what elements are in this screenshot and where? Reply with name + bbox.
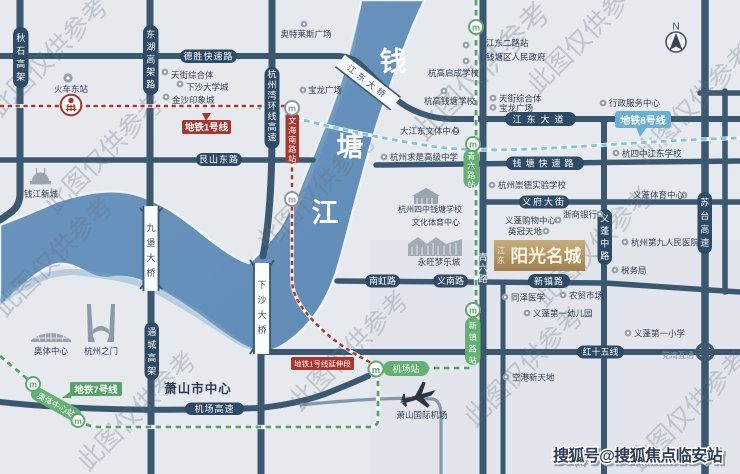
svg-text:青: 青 bbox=[467, 151, 475, 161]
svg-text:站: 站 bbox=[288, 154, 296, 164]
svg-text:下: 下 bbox=[257, 280, 266, 290]
svg-text:秋: 秋 bbox=[16, 32, 25, 43]
svg-text:桥: 桥 bbox=[257, 324, 266, 335]
svg-text:架: 架 bbox=[146, 67, 155, 77]
svg-text:高: 高 bbox=[700, 224, 709, 235]
svg-text:义南路: 义南路 bbox=[437, 275, 464, 286]
svg-text:杭: 杭 bbox=[267, 69, 276, 80]
svg-text:南虹路: 南虹路 bbox=[369, 275, 396, 286]
svg-text:大: 大 bbox=[257, 309, 266, 320]
svg-text:江: 江 bbox=[312, 198, 339, 228]
svg-text:南: 南 bbox=[288, 135, 296, 145]
svg-text:钱塘快速路: 钱塘快速路 bbox=[512, 158, 577, 169]
svg-text:高: 高 bbox=[147, 352, 156, 363]
svg-text:m: m bbox=[288, 195, 296, 205]
svg-text:架: 架 bbox=[147, 366, 156, 376]
svg-text:镇: 镇 bbox=[469, 332, 477, 342]
svg-text:东: 东 bbox=[497, 255, 505, 265]
svg-text:义蓬第一小学: 义蓬第一小学 bbox=[634, 329, 686, 339]
svg-text:六: 六 bbox=[478, 262, 487, 273]
svg-text:税务局: 税务局 bbox=[621, 266, 647, 276]
svg-text:高: 高 bbox=[146, 54, 155, 65]
svg-text:江东大道: 江东大道 bbox=[512, 113, 568, 124]
svg-text:艮山东路: 艮山东路 bbox=[199, 154, 239, 165]
svg-text:环: 环 bbox=[267, 101, 276, 111]
svg-text:钱塘区人民政府: 钱塘区人民政府 bbox=[486, 52, 546, 62]
svg-text:浙商银行: 浙商银行 bbox=[563, 210, 598, 220]
svg-text:义府大街: 义府大街 bbox=[522, 196, 566, 207]
svg-text:杭州四中钱塘学校: 杭州四中钱塘学校 bbox=[398, 204, 462, 214]
svg-text:路: 路 bbox=[469, 344, 477, 354]
svg-text:通: 通 bbox=[147, 327, 156, 337]
svg-text:m: m bbox=[469, 140, 477, 150]
svg-text:奥特莱斯广场: 奥特莱斯广场 bbox=[280, 29, 331, 39]
svg-text:堡: 堡 bbox=[146, 237, 155, 248]
svg-text:永旺梦乐城: 永旺梦乐城 bbox=[418, 257, 461, 267]
svg-text:钱江新城: 钱江新城 bbox=[24, 189, 59, 199]
svg-text:海: 海 bbox=[288, 125, 296, 135]
svg-text:沙: 沙 bbox=[257, 295, 266, 305]
svg-text:台: 台 bbox=[700, 210, 709, 221]
svg-text:湖: 湖 bbox=[146, 42, 155, 52]
svg-text:m: m bbox=[372, 365, 380, 376]
svg-text:路: 路 bbox=[467, 170, 475, 180]
svg-text:高: 高 bbox=[16, 58, 25, 69]
svg-text:天街综合体: 天街综合体 bbox=[171, 70, 214, 80]
svg-text:州: 州 bbox=[267, 80, 276, 90]
svg-text:新镇路: 新镇路 bbox=[534, 275, 564, 286]
svg-text:杭高钱塘学校: 杭高钱塘学校 bbox=[424, 96, 476, 106]
svg-text:石: 石 bbox=[16, 46, 25, 56]
svg-text:架: 架 bbox=[16, 72, 25, 82]
svg-text:m: m bbox=[29, 380, 37, 390]
svg-text:搜狐号@搜狐焦点临安站: 搜狐号@搜狐焦点临安站 bbox=[553, 446, 723, 465]
svg-text:党湾互通: 党湾互通 bbox=[662, 350, 694, 360]
svg-text:义蓬购物中心: 义蓬购物中心 bbox=[505, 216, 557, 226]
svg-text:同泽医学: 同泽医学 bbox=[511, 293, 546, 303]
svg-text:杭高启成学校: 杭高启成学校 bbox=[428, 68, 480, 78]
svg-text:火车东站: 火车东站 bbox=[54, 84, 89, 94]
svg-text:农贸市场: 农贸市场 bbox=[569, 291, 603, 301]
svg-text:塘: 塘 bbox=[337, 131, 364, 162]
svg-text:江东二路站: 江东二路站 bbox=[486, 38, 529, 48]
svg-text:m: m bbox=[472, 23, 480, 33]
svg-text:桥: 桥 bbox=[146, 267, 155, 278]
svg-text:义蓬第一幼儿园: 义蓬第一幼儿园 bbox=[533, 309, 593, 319]
svg-text:德胜快速路: 德胜快速路 bbox=[183, 51, 233, 62]
svg-text:站: 站 bbox=[469, 355, 477, 365]
svg-text:速: 速 bbox=[700, 238, 709, 248]
svg-text:宝龙广场: 宝龙广场 bbox=[308, 85, 342, 95]
svg-text:奥体中心: 奥体中心 bbox=[34, 346, 69, 356]
svg-text:宝龙广场: 宝龙广场 bbox=[499, 103, 533, 113]
svg-text:城: 城 bbox=[147, 340, 156, 350]
svg-text:行政服务中心: 行政服务中心 bbox=[609, 98, 661, 108]
svg-text:N: N bbox=[672, 21, 680, 33]
svg-text:湾: 湾 bbox=[267, 90, 276, 101]
svg-text:六: 六 bbox=[467, 161, 475, 171]
svg-text:九: 九 bbox=[146, 223, 155, 233]
svg-text:站: 站 bbox=[467, 180, 475, 190]
svg-text:地铁7号线: 地铁7号线 bbox=[74, 384, 118, 396]
svg-text:大江东文体中心: 大江东文体中心 bbox=[400, 126, 460, 136]
svg-text:红十五线: 红十五线 bbox=[582, 346, 618, 357]
svg-text:英冠天地: 英冠天地 bbox=[508, 227, 543, 237]
svg-text:义蓬体育中心: 义蓬体育中心 bbox=[633, 190, 685, 200]
svg-text:钱: 钱 bbox=[380, 47, 407, 77]
svg-text:杭州第九人民医院: 杭州第九人民医院 bbox=[631, 238, 700, 248]
svg-text:青: 青 bbox=[478, 251, 487, 262]
svg-text:速: 速 bbox=[267, 133, 276, 143]
svg-text:路: 路 bbox=[600, 250, 609, 261]
svg-text:m: m bbox=[288, 104, 296, 114]
svg-text:阳光名城: 阳光名城 bbox=[510, 245, 581, 266]
svg-text:m: m bbox=[469, 306, 477, 316]
svg-text:下沙大学城: 下沙大学城 bbox=[186, 82, 229, 92]
svg-text:金沙印象城: 金沙印象城 bbox=[172, 95, 215, 105]
svg-text:新: 新 bbox=[469, 321, 477, 331]
svg-text:杭州求是高级中学: 杭州求是高级中学 bbox=[390, 152, 459, 162]
svg-text:天街综合体: 天街综合体 bbox=[499, 94, 542, 104]
svg-text:地铁1号线: 地铁1号线 bbox=[185, 122, 229, 134]
svg-text:地铁8号线: 地铁8号线 bbox=[620, 114, 666, 127]
svg-text:高: 高 bbox=[267, 121, 276, 132]
svg-text:机场站: 机场站 bbox=[392, 363, 419, 374]
svg-text:苏: 苏 bbox=[700, 197, 709, 208]
svg-text:路: 路 bbox=[288, 144, 296, 154]
svg-text:文化体育中心: 文化体育中心 bbox=[412, 217, 460, 227]
svg-text:杭四中江东学校: 杭四中江东学校 bbox=[622, 149, 682, 159]
svg-text:萧山市中心: 萧山市中心 bbox=[164, 381, 232, 396]
svg-text:杭州之门: 杭州之门 bbox=[84, 346, 118, 356]
svg-text:中: 中 bbox=[600, 238, 609, 249]
svg-text:杭州崇德实验学校: 杭州崇德实验学校 bbox=[498, 180, 567, 190]
svg-text:线: 线 bbox=[267, 111, 276, 122]
svg-text:m: m bbox=[74, 416, 82, 426]
svg-text:蓬: 蓬 bbox=[600, 225, 609, 236]
svg-text:路: 路 bbox=[146, 79, 155, 90]
svg-text:东: 东 bbox=[146, 29, 155, 40]
svg-text:路: 路 bbox=[478, 273, 487, 284]
svg-text:地铁1号线延伸段: 地铁1号线延伸段 bbox=[294, 359, 351, 369]
svg-text:机场高速: 机场高速 bbox=[194, 403, 234, 414]
svg-text:文: 文 bbox=[288, 116, 296, 126]
svg-text:大: 大 bbox=[146, 252, 155, 263]
svg-text:空港新天地: 空港新天地 bbox=[512, 373, 555, 383]
svg-text:江: 江 bbox=[497, 246, 505, 255]
svg-text:萧山国际机场: 萧山国际机场 bbox=[396, 410, 447, 420]
